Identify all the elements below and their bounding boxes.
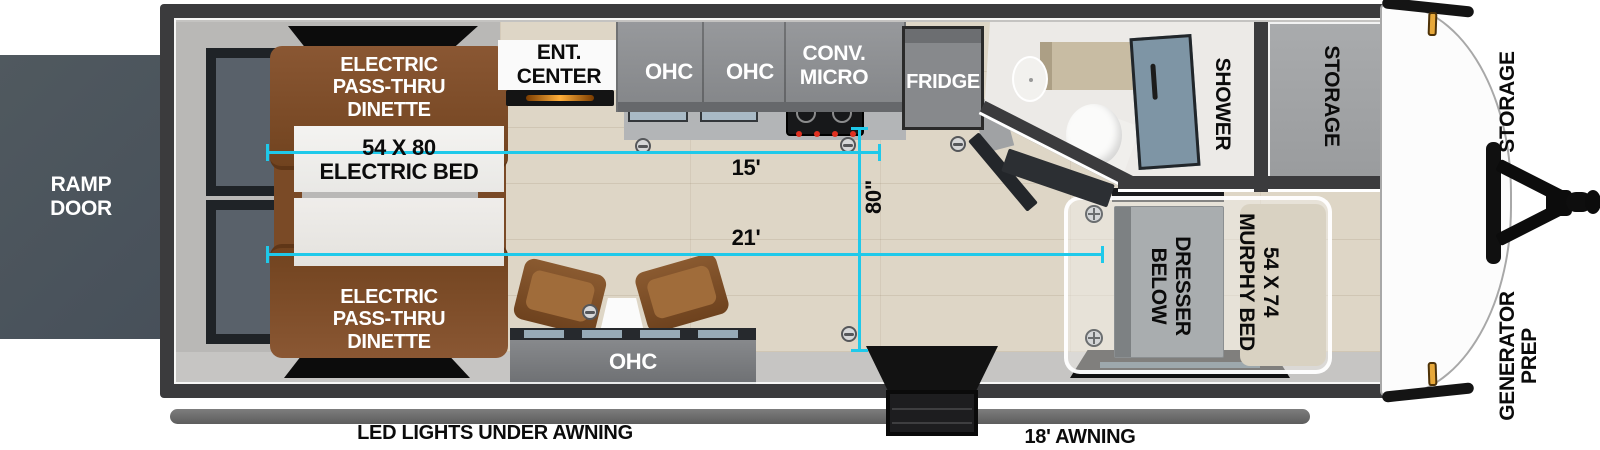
entry-step-top: [866, 346, 998, 392]
storage-exterior-label: STORAGE: [1496, 37, 1520, 167]
screw-5: [841, 326, 857, 342]
hitch-knob: [1585, 190, 1600, 214]
stove-knob-4: [850, 131, 856, 137]
led-lights-label: LED LIGHTS UNDER AWNING: [330, 422, 660, 444]
ramp-door: RAMP DOOR: [0, 55, 162, 339]
ent-center-label: ENT. CENTER: [517, 41, 602, 88]
ent-center: ENT. CENTER: [498, 40, 620, 90]
dim-line-80: [858, 128, 861, 351]
entry-step-bottom: [886, 390, 978, 436]
entry-step-tread-1: [892, 408, 972, 410]
generator-prep-label: GENERATOR PREP: [1497, 263, 1543, 449]
marker-light-bottom: [1428, 362, 1438, 386]
sofa-ohc-window-3: [640, 330, 680, 338]
dim-label-21: 21': [712, 226, 780, 251]
awning-label: 18' AWNING: [990, 426, 1170, 448]
bathroom-wall-bottom: [1118, 176, 1386, 192]
dim-line-21: [267, 253, 1103, 256]
storage-room-label: STORAGE: [1317, 36, 1343, 156]
stove-knob-3: [832, 131, 838, 137]
conv-micro-label: CONV. MICRO: [784, 42, 884, 89]
vanity: [1040, 42, 1136, 90]
kitchen-cabinets: OHC OHC CONV. MICRO: [616, 22, 906, 112]
bed-corner-latch-1: [1085, 205, 1103, 223]
recliner-right-cushion: [645, 264, 718, 320]
fridge: FRIDGE: [902, 26, 984, 130]
dresser-label: DRESSER BELOW: [1146, 226, 1194, 346]
entry-step-tread-2: [892, 422, 972, 424]
ohc-label-2: OHC: [715, 60, 785, 85]
electric-bed-label: 54 X 80 ELECTRIC BED: [294, 136, 504, 184]
dinette-front-label: ELECTRIC PASS-THRU DINETTE: [270, 46, 508, 121]
shower-label: SHOWER: [1210, 34, 1234, 174]
shower-door-handle: [1150, 64, 1157, 100]
dim-line-21-cap-left: [266, 246, 269, 263]
marker-light-top: [1428, 12, 1438, 36]
murphy-bed-label: 54 X 74 MURPHY BED: [1234, 202, 1282, 362]
sofa-ohc-window-1: [524, 330, 564, 338]
dim-line-15-cap-right: [878, 144, 881, 161]
sofa-ohc-label: OHC: [510, 350, 756, 375]
entry-steps: [866, 346, 998, 438]
screw-4: [582, 304, 598, 320]
dresser-side: [1115, 207, 1131, 357]
sink-drain: [1029, 78, 1033, 82]
dim-line-15-cap-left: [266, 144, 269, 161]
floorplan: RAMP DOOR LED LIGHTS UNDER AWNING 18' AW…: [0, 0, 1600, 450]
fridge-label: FRIDGE: [905, 71, 981, 93]
sofa-ohc: OHC: [510, 328, 756, 384]
stove-knob-1: [796, 131, 802, 137]
dim-line-21-cap-right: [1101, 246, 1104, 263]
dim-label-80: 80": [862, 165, 886, 229]
bathroom-divider-wall: [1254, 22, 1268, 192]
fireplace-flame: [526, 95, 594, 101]
cabinet-light-rail: [618, 102, 904, 112]
stove-knob-2: [814, 131, 820, 137]
bed-corner-latch-2: [1085, 329, 1103, 347]
sink: [1012, 56, 1048, 102]
ramp-door-label: RAMP DOOR: [50, 173, 112, 220]
sofa-ohc-window-2: [582, 330, 622, 338]
fireplace: [506, 90, 614, 106]
screw-3: [950, 136, 966, 152]
dim-line-80-cap-top: [851, 127, 868, 130]
sofa-ohc-window-4: [698, 330, 738, 338]
dim-label-15: 15': [714, 156, 778, 181]
dim-line-80-cap-bottom: [851, 349, 868, 352]
fridge-top: [905, 29, 981, 43]
shower-door: [1129, 34, 1200, 170]
ohc-label-1: OHC: [634, 60, 704, 85]
